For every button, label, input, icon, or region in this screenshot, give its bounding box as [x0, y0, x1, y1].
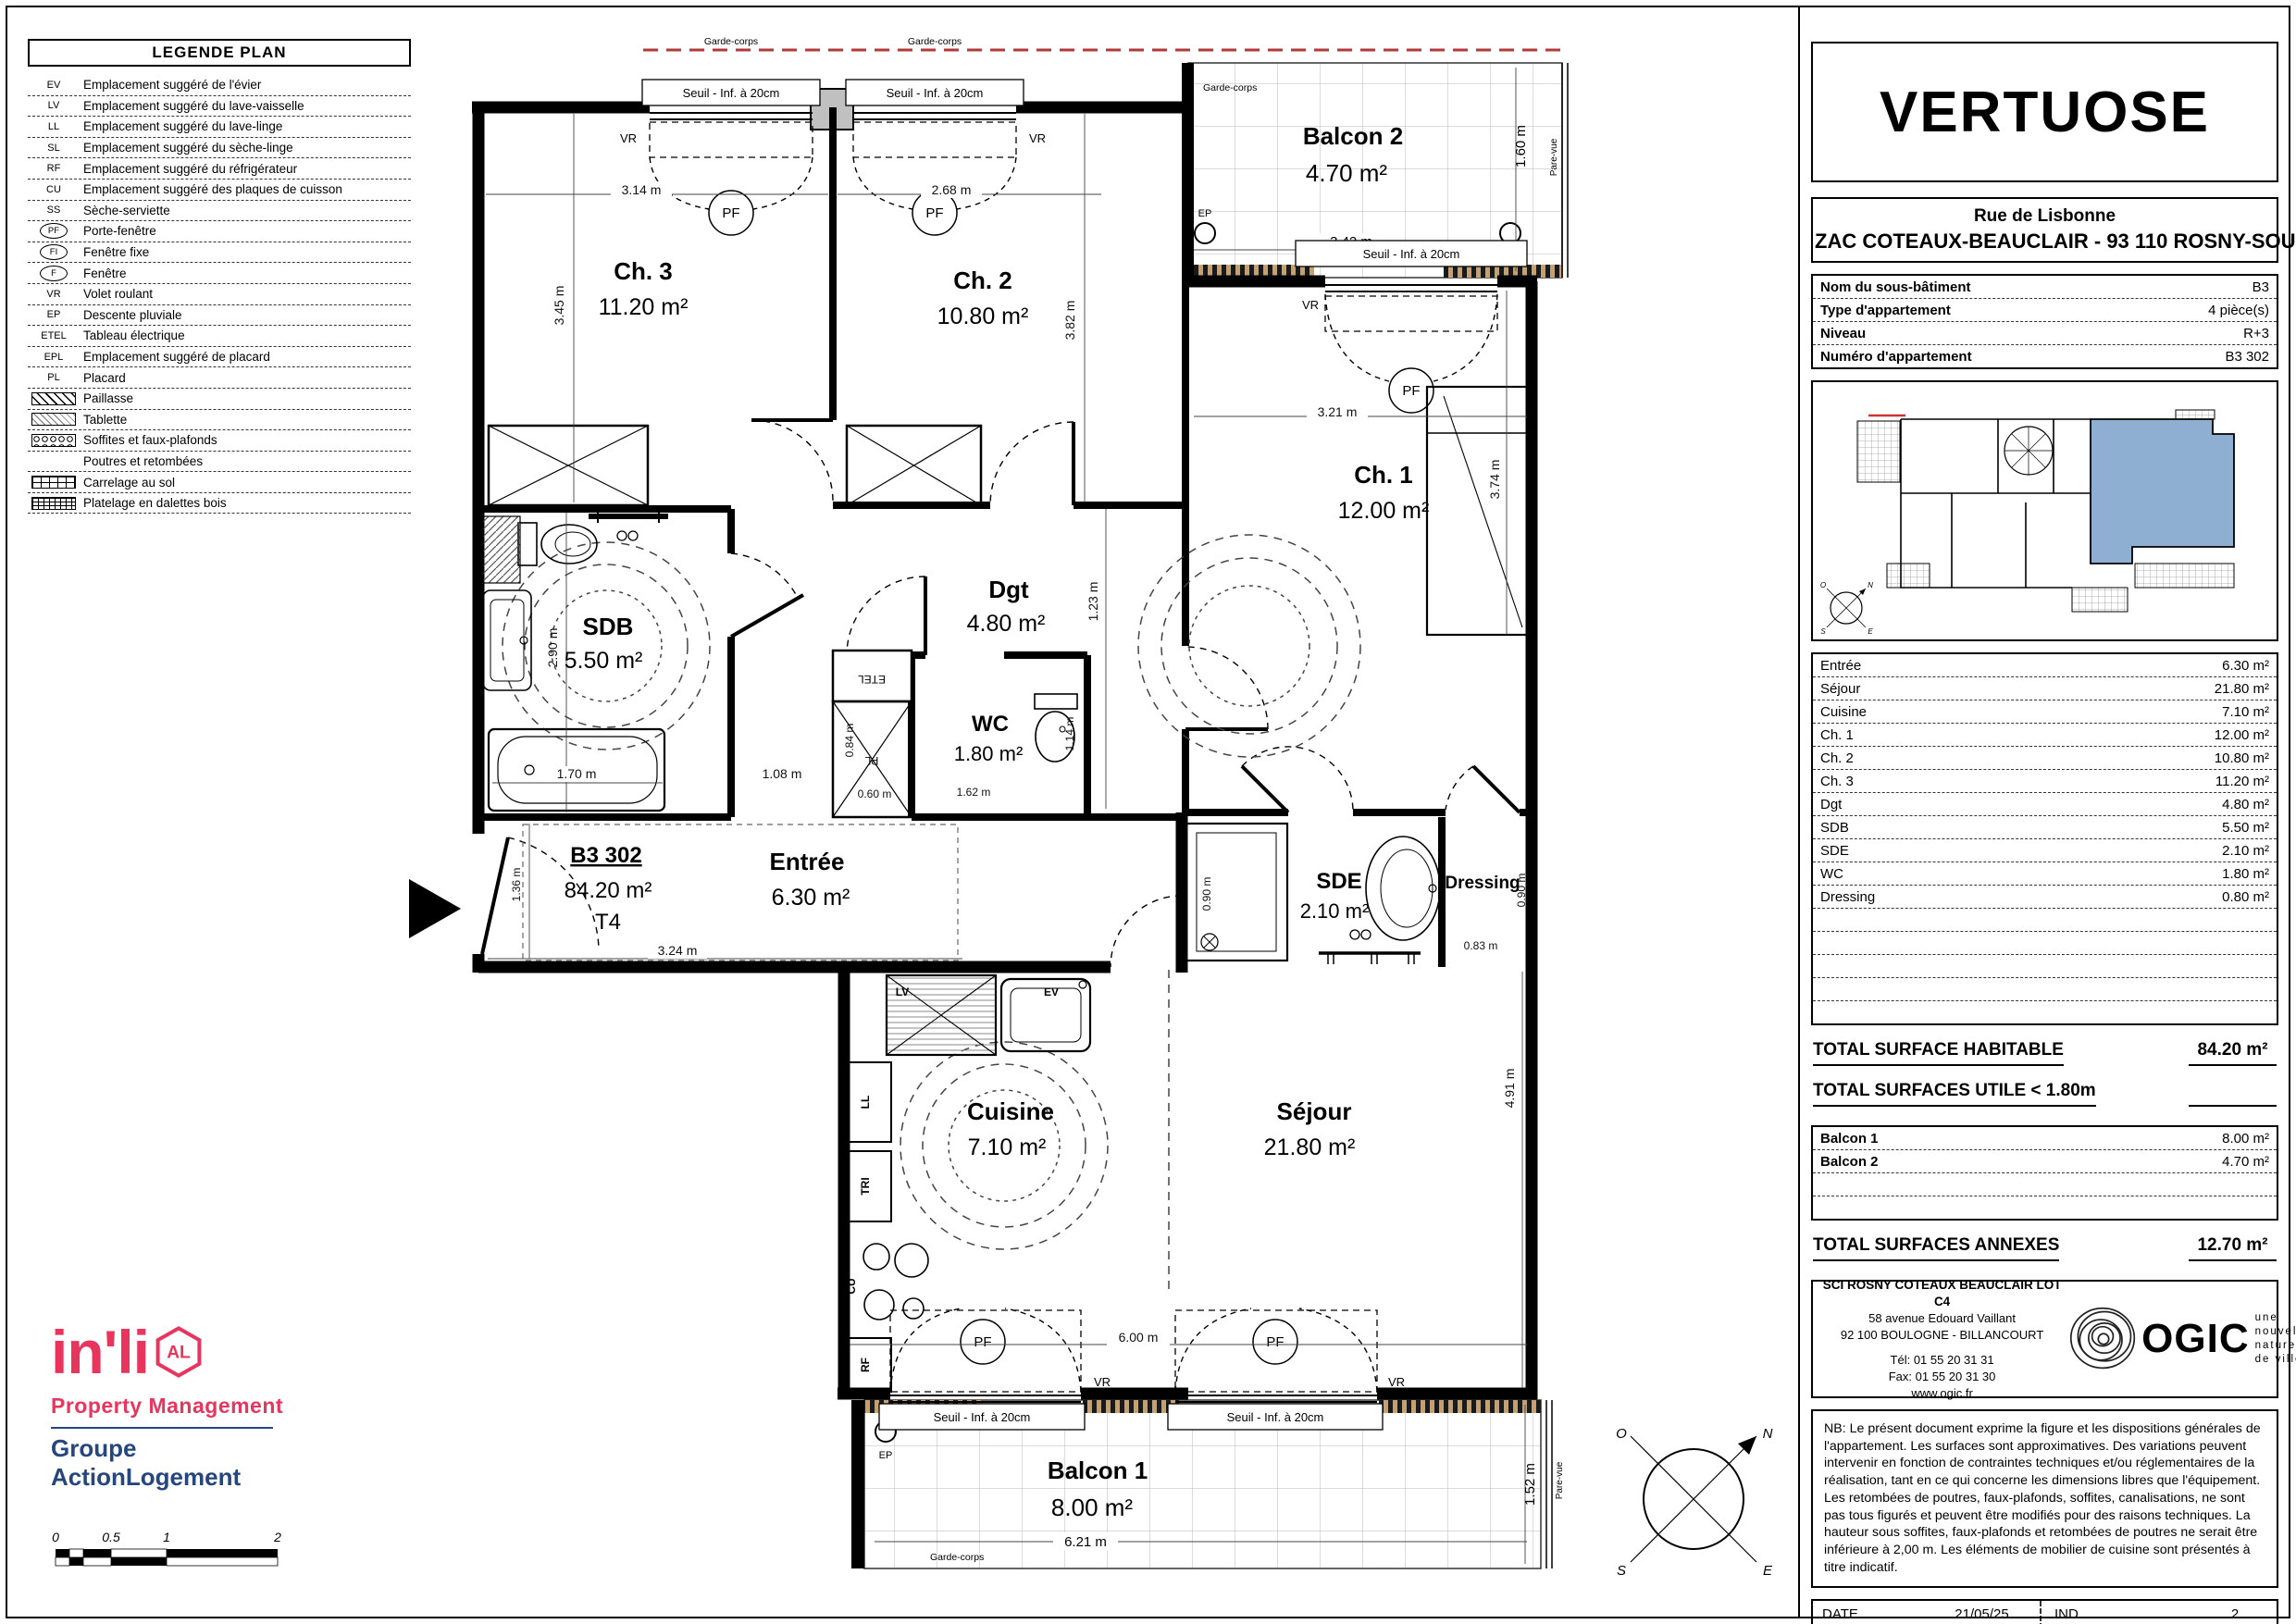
pl-label: PL — [864, 754, 878, 767]
total-utile-row: TOTAL SURFACES UTILE < 1.80m — [1811, 1081, 2278, 1107]
room-area-sdb: 5.50 m² — [565, 648, 643, 674]
annex-row: Balcon 24.70 m² — [1813, 1150, 2277, 1173]
developer-box: SCI ROSNY COTEAUX BEAUCLAIR LOT C4 58 av… — [1811, 1280, 2278, 1398]
surface-row: Dgt4.80 m² — [1813, 793, 2277, 816]
legend-row: SLEmplacement suggéré du sèche-linge — [28, 138, 411, 159]
dim-label: 3.82 m — [1062, 301, 1077, 341]
room-area-ch1: 12.00 m² — [1338, 498, 1430, 524]
ogic-tagline: une nouvelle nature de ville — [2255, 1311, 2296, 1367]
scale-bar-blocks — [56, 1549, 278, 1566]
vr-label: VR — [1029, 131, 1046, 145]
pf-label: PF — [722, 205, 739, 221]
surface-row: Entrée6.30 m² — [1813, 654, 2277, 677]
room-label-sejour: Séjour — [1277, 1097, 1352, 1125]
dim-label: 1.60 m — [1513, 125, 1529, 167]
legend-row: SSSèche-serviette — [28, 201, 411, 222]
annex-row: Balcon 18.00 m² — [1813, 1127, 2277, 1150]
room-area-sejour: 21.80 m² — [1264, 1134, 1356, 1160]
dim-label: 1.62 m — [957, 786, 991, 799]
pf-label: PF — [1266, 1334, 1284, 1350]
address-box: Rue de Lisbonne ZAC COTEAUX-BEAUCLAIR - … — [1811, 197, 2278, 263]
seuil-label: Seuil - Inf. à 20cm — [683, 86, 780, 100]
ogic-logo: OGIC — [2141, 1316, 2249, 1362]
garde-corps-label: Garde-corps — [908, 36, 962, 47]
pare-vue-label: Pare-vue — [1555, 1461, 1565, 1499]
room-label-ch1: Ch. 1 — [1354, 461, 1413, 489]
highlighted-unit — [2091, 419, 2234, 564]
surface-row: Cuisine7.10 m² — [1813, 700, 2277, 724]
panel-divider — [1798, 6, 1800, 1618]
seuil-label: Seuil - Inf. à 20cm — [1363, 247, 1460, 261]
al-hexagon-icon: AL — [153, 1323, 205, 1381]
ind-label: IND — [2042, 1606, 2193, 1622]
seuil-label: Seuil - Inf. à 20cm — [887, 86, 984, 100]
garde-corps-label: Garde-corps — [930, 1552, 984, 1563]
apartment-floor-plan: EP Garde-corps Pare-vue 3.42 m 1.60 m Ba… — [398, 26, 1814, 1599]
garde-corps-label: Garde-corps — [1203, 82, 1257, 93]
dim-label: 1.36 m — [510, 868, 523, 902]
surface-row: Ch. 210.80 m² — [1813, 747, 2277, 770]
dim-label: 0.60 m — [858, 787, 892, 800]
unit-number-label: B3 302 — [570, 843, 641, 868]
cu-label: CU — [845, 1278, 858, 1294]
date-value: 21/05/25 — [1924, 1606, 2040, 1622]
dim-label: 0.83 m — [1464, 939, 1498, 952]
room-label-balcon1: Balcon 1 — [1048, 1457, 1148, 1484]
brand-divider — [51, 1427, 273, 1429]
pf-label: PF — [974, 1334, 991, 1350]
vr-label: VR — [1302, 298, 1319, 312]
legend-row: EPDescente pluviale — [28, 305, 411, 327]
total-annexes-row: TOTAL SURFACES ANNEXES 12.70 m² — [1811, 1235, 2278, 1261]
ind-value: 2 — [2193, 1606, 2277, 1622]
room-label-dressing: Dressing — [1445, 874, 1520, 893]
legend-row: Paillasse — [28, 389, 411, 410]
room-area-entree: 6.30 m² — [772, 885, 850, 911]
nb-note-box: NB: Le présent document exprime la figur… — [1811, 1409, 2278, 1588]
ep-label: EP — [879, 1450, 893, 1461]
svg-text:S: S — [1820, 627, 1826, 636]
room-area-wc: 1.80 m² — [954, 742, 1024, 765]
info-row: Numéro d'appartementB3 302 — [1813, 345, 2277, 367]
vr-label: VR — [1094, 1375, 1111, 1389]
property-management-label: Property Management — [51, 1394, 292, 1419]
surface-row: SDE2.10 m² — [1813, 839, 2277, 862]
surface-row-empty — [1813, 1001, 2277, 1023]
room-label-sde: SDE — [1316, 869, 1361, 894]
room-area-balcon1: 8.00 m² — [1051, 1494, 1133, 1521]
dim-label: 1.14 m — [1063, 717, 1076, 751]
room-area-ch3: 11.20 m² — [599, 294, 689, 320]
developer-website: www.ogic.fr — [1817, 1385, 2067, 1402]
tablette-swatch — [31, 413, 76, 426]
legend-row: PLPlacard — [28, 367, 411, 389]
legend-row: Poutres et retombées — [28, 452, 411, 473]
legend-row: Tablette — [28, 410, 411, 431]
legend-row: RFEmplacement suggéré du réfrigérateur — [28, 158, 411, 180]
developer-tel: Tél: 01 55 20 31 31 — [1817, 1352, 2067, 1369]
ll-label: LL — [859, 1096, 872, 1110]
scale-2: 2 — [273, 1530, 281, 1544]
apartment-info-table: Nom du sous-bâtimentB3 Type d'appartemen… — [1811, 274, 2278, 369]
room-label-cuisine: Cuisine — [967, 1097, 1054, 1125]
nb-text: NB: Le présent document exprime la figur… — [1824, 1421, 2261, 1575]
platelage-swatch — [31, 497, 76, 510]
rf-label: RF — [859, 1357, 872, 1372]
info-row: NiveauR+3 — [1813, 322, 2277, 345]
project-name: VERTUOSE — [1880, 80, 2210, 145]
surface-row: WC1.80 m² — [1813, 862, 2277, 886]
legend-row: ETELTableau électrique — [28, 326, 411, 347]
room-label-sdb: SDB — [583, 613, 634, 640]
svg-text:N: N — [1868, 581, 1873, 589]
pf-label: PF — [925, 205, 943, 221]
total-utile-value-blank — [2189, 1101, 2277, 1107]
legend-row: LLEmplacement suggéré du lave-linge — [28, 117, 411, 138]
room-label-wc: WC — [972, 712, 1009, 737]
developer-address1: 58 avenue Edouard Vaillant — [1817, 1310, 2067, 1327]
pf-label: PF — [1402, 383, 1420, 399]
room-area-balcon2: 4.70 m² — [1306, 159, 1387, 187]
compass: O N S E — [1616, 1426, 1773, 1579]
legend-row: EVEmplacement suggéré de l'évier — [28, 75, 411, 96]
dim-label: 6.21 m — [1064, 1534, 1107, 1550]
surfaces-table: Entrée6.30 m² Séjour21.80 m² Cuisine7.10… — [1811, 652, 2278, 1025]
etel-label: ETEL — [858, 673, 886, 686]
developer-address2: 92 100 BOULOGNE - BILLANCOURT — [1817, 1327, 2067, 1344]
fi-key-icon: FI — [40, 244, 68, 260]
groupe-actionlogement-label: Groupe ActionLogement — [51, 1434, 292, 1492]
info-row: Nom du sous-bâtimentB3 — [1813, 276, 2277, 299]
vr-label: VR — [620, 131, 637, 145]
pare-vue-label: Pare-vue — [1549, 138, 1559, 176]
compass-south: S — [1617, 1563, 1626, 1579]
legend-title: LEGENDE PLAN — [28, 39, 411, 67]
surface-row-empty — [1813, 932, 2277, 955]
room-label-dgt: Dgt — [988, 576, 1029, 603]
dim-label: 6.00 m — [1119, 1330, 1159, 1345]
surface-row: Séjour21.80 m² — [1813, 677, 2277, 700]
dim-label: 0.84 m — [843, 724, 856, 758]
inli-logo: in'li — [51, 1325, 149, 1380]
legend-row: PFPorte-fenêtre — [28, 221, 411, 242]
svg-text:AL: AL — [167, 1343, 191, 1362]
dim-label: 1.70 m — [557, 766, 597, 781]
key-plan-compass: O N S E — [1820, 581, 1873, 636]
entrance-arrow — [409, 879, 461, 938]
scale-0: 0 — [52, 1530, 59, 1544]
room-label-entree: Entrée — [770, 848, 845, 875]
date-row: DATE 21/05/25 IND 2 — [1811, 1599, 2278, 1624]
ep-label: EP — [1198, 208, 1212, 219]
address-line2: ZAC COTEAUX-BEAUCLAIR - 93 110 ROSNY-SOU… — [1815, 229, 2275, 254]
project-title-box: VERTUOSE — [1811, 42, 2278, 182]
annex-row-empty — [1813, 1173, 2277, 1196]
room-label-ch2: Ch. 2 — [953, 267, 1012, 294]
key-plan-box: O N S E — [1811, 380, 2278, 641]
legend-row: FFenêtre — [28, 263, 411, 284]
legend-row: Platelage en dalettes bois — [28, 493, 411, 514]
surface-row-empty — [1813, 955, 2277, 978]
poutres-swatch — [32, 456, 75, 467]
dim-label: 3.21 m — [1318, 404, 1358, 419]
ogic-spiral-icon — [2067, 1302, 2140, 1376]
surface-row: SDB5.50 m² — [1813, 816, 2277, 839]
date-label: DATE — [1813, 1606, 1924, 1622]
room-area-ch2: 10.80 m² — [937, 304, 1029, 329]
room-area-sde: 2.10 m² — [1300, 899, 1370, 923]
annex-surfaces-table: Balcon 18.00 m² Balcon 24.70 m² — [1811, 1125, 2278, 1221]
room-area-cuisine: 7.10 m² — [968, 1134, 1047, 1160]
dim-label: 1.52 m — [1522, 1463, 1538, 1506]
compass-east: E — [1763, 1563, 1773, 1579]
dim-label: 2.68 m — [932, 182, 972, 197]
title-block-panel: VERTUOSE Rue de Lisbonne ZAC COTEAUX-BEA… — [1811, 0, 2278, 1624]
address-line1: Rue de Lisbonne — [1815, 206, 2275, 227]
legend-row: FIFenêtre fixe — [28, 242, 411, 264]
lv-label: LV — [896, 986, 909, 998]
legend-row: EPLEmplacement suggéré de placard — [28, 347, 411, 368]
key-plan: O N S E — [1813, 382, 2277, 639]
compass-north: N — [1763, 1426, 1773, 1442]
developer-name: SCI ROSNY COTEAUX BEAUCLAIR LOT C4 — [1817, 1277, 2067, 1310]
dim-label: 1.23 m — [1086, 582, 1100, 622]
legend-row: Soffites et faux-plafonds — [28, 430, 411, 452]
info-row: Type d'appartement4 pièce(s) — [1813, 299, 2277, 322]
svg-text:O: O — [1820, 581, 1826, 589]
legend-row: Carrelage au sol — [28, 472, 411, 493]
seuil-label: Seuil - Inf. à 20cm — [1227, 1410, 1324, 1424]
floor-plan-sheet: EP Garde-corps Pare-vue 3.42 m 1.60 m Ba… — [0, 0, 2296, 1624]
dim-label: 2.90 m — [545, 628, 560, 668]
garde-corps-label: Garde-corps — [704, 36, 758, 47]
legend-row: VRVolet roulant — [28, 284, 411, 305]
inli-branding: in'li AL Property Management Groupe Acti… — [51, 1325, 292, 1492]
scale-bar: 0 0.5 1 2 — [48, 1529, 298, 1586]
tri-label: TRI — [859, 1177, 872, 1195]
scale-05: 0.5 — [102, 1530, 120, 1544]
surface-row-empty — [1813, 978, 2277, 1001]
soffites-swatch — [31, 434, 76, 447]
unit-area-label: 84.20 m² — [565, 878, 652, 903]
annex-row-empty — [1813, 1196, 2277, 1219]
dim-label: 3.74 m — [1487, 460, 1502, 500]
f-key-icon: F — [40, 266, 68, 281]
room-area-dgt: 4.80 m² — [967, 611, 1046, 637]
total-habitable-row: TOTAL SURFACE HABITABLE 84.20 m² — [1811, 1040, 2278, 1066]
dim-label: 0.90 m — [1200, 877, 1213, 911]
svg-text:E: E — [1868, 627, 1873, 636]
surface-row: Ch. 112.00 m² — [1813, 724, 2277, 747]
vr-label: VR — [1388, 1375, 1405, 1389]
scale-1: 1 — [163, 1530, 170, 1544]
compass-west: O — [1616, 1426, 1627, 1442]
pf-key-icon: PF — [40, 223, 68, 239]
room-label-balcon2: Balcon 2 — [1303, 122, 1403, 150]
carrelage-swatch — [31, 476, 76, 489]
legend-box: LEGENDE PLAN EVEmplacement suggéré de l'… — [28, 39, 411, 514]
dim-label: 3.24 m — [658, 943, 698, 958]
seuil-label: Seuil - Inf. à 20cm — [934, 1410, 1031, 1424]
dim-label: 3.14 m — [622, 182, 662, 197]
developer-fax: Fax: 01 55 20 31 30 — [1817, 1369, 2067, 1385]
legend-row: LVEmplacement suggéré du lave-vaisselle — [28, 96, 411, 118]
dim-label: 1.08 m — [763, 766, 802, 781]
surface-row: Dressing0.80 m² — [1813, 886, 2277, 909]
room-label-ch3: Ch. 3 — [614, 257, 673, 285]
legend-rows: EVEmplacement suggéré de l'évier LVEmpla… — [28, 75, 411, 514]
dim-label: 4.91 m — [1502, 1069, 1517, 1109]
paillasse-swatch — [31, 392, 76, 405]
legend-row: CUEmplacement suggéré des plaques de cui… — [28, 180, 411, 201]
ev-label: EV — [1044, 986, 1059, 998]
dim-label: 3.45 m — [552, 286, 566, 326]
surface-row-empty — [1813, 909, 2277, 932]
surface-row: Ch. 311.20 m² — [1813, 770, 2277, 793]
unit-type-label: T4 — [595, 910, 621, 935]
